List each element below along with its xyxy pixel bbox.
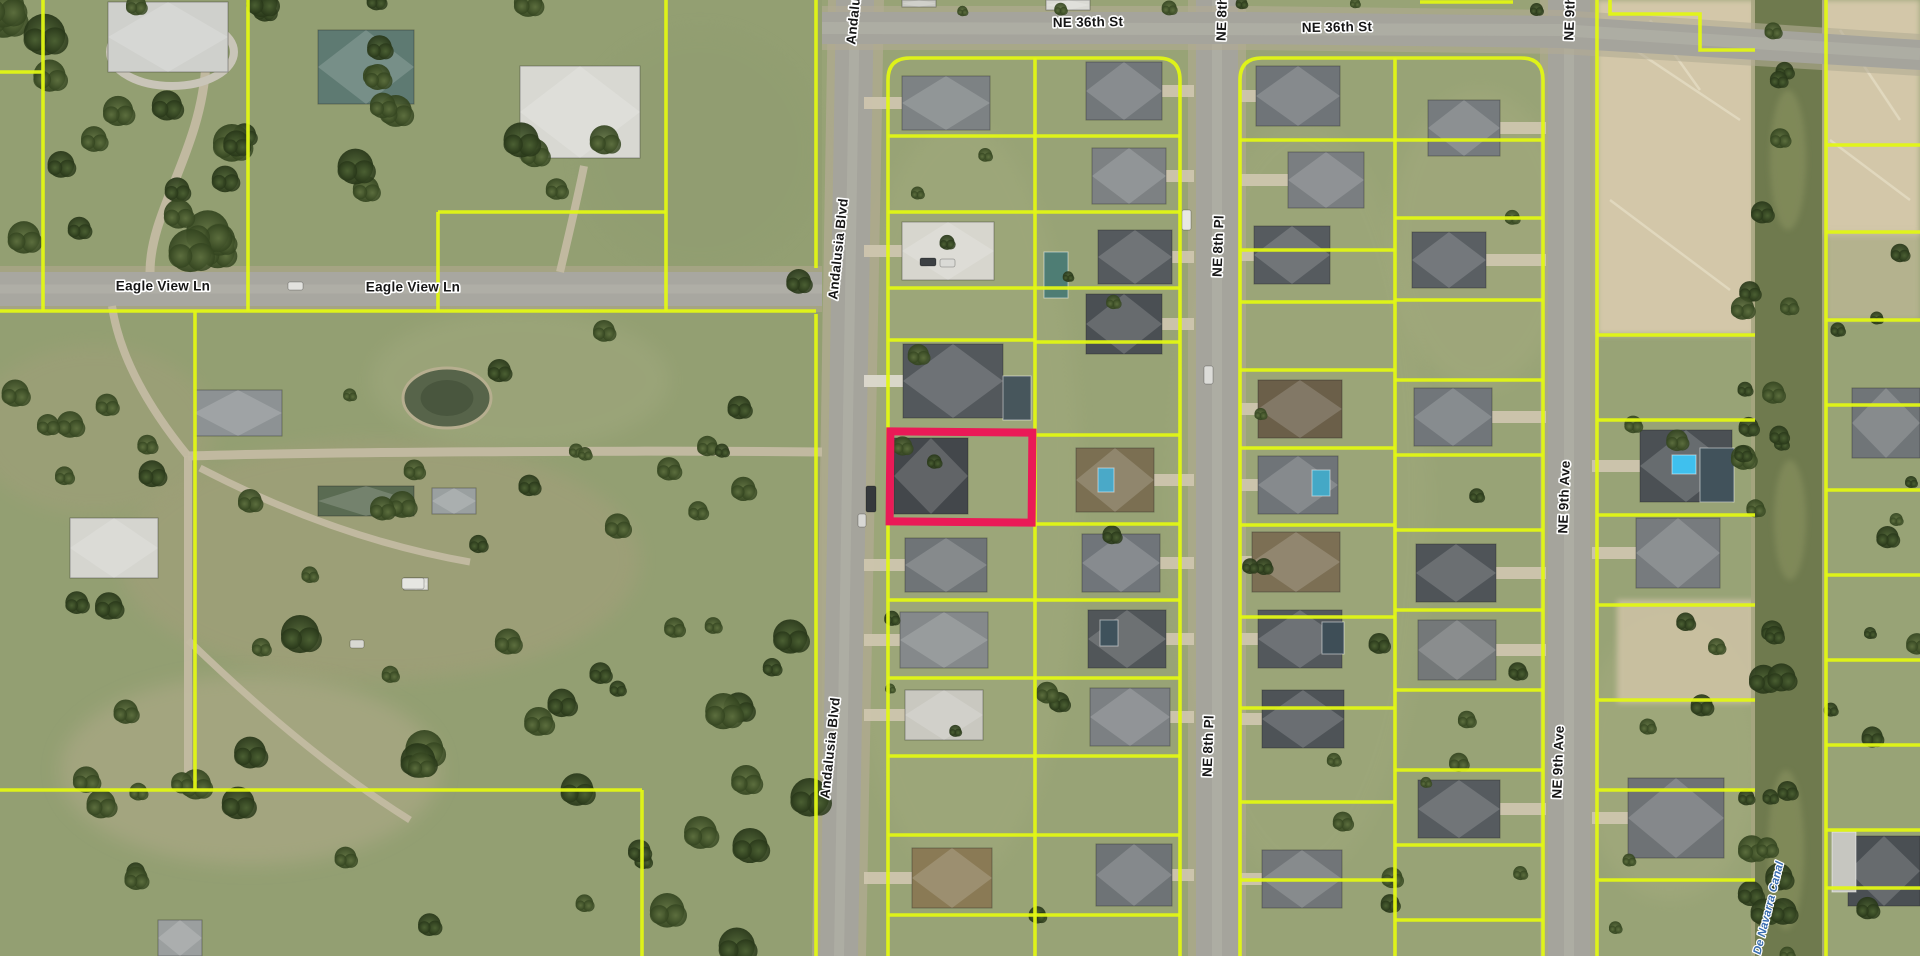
tree-canopy [338,161,358,181]
tree-canopy [238,497,251,510]
house [1428,100,1500,156]
canal-shallow-patch [1770,90,1806,230]
street-label: NE 9th Ave [1549,725,1567,799]
car [288,282,303,290]
tree-canopy [1327,758,1335,766]
tree-canopy [281,628,302,649]
driveway [1240,633,1258,645]
tree-canopy [786,278,800,292]
tree-canopy [908,351,920,363]
tree-canopy [1780,304,1790,314]
tree-canopy [688,508,699,519]
house [1412,232,1486,288]
house [1092,148,1166,204]
tree-canopy [96,402,108,414]
tree-canopy [81,135,95,149]
tree-canopy [524,717,540,733]
house [70,518,158,578]
tree-canopy [1738,890,1752,904]
tree-canopy [1739,424,1750,435]
driveway [1592,460,1640,472]
canal-shallow-patch [1774,460,1806,580]
driveway [864,709,905,721]
driveway [1162,318,1194,330]
driveway [1240,174,1288,186]
tree-canopy [715,449,723,457]
pool [1098,468,1114,492]
tree-canopy [1770,135,1781,146]
house [1258,380,1342,438]
tree-canopy [1762,795,1771,804]
tree-canopy [1508,669,1518,679]
tree-canopy [86,800,102,816]
house [900,612,988,668]
tree-canopy [1236,2,1242,8]
tree-canopy [1767,673,1782,688]
tree-canopy [382,672,391,681]
street-label: NE 9th Ave [1555,460,1573,534]
street-label: NE 8th Pl [1199,715,1216,777]
house [1096,844,1172,906]
tree-canopy [1876,534,1888,546]
house [912,848,992,908]
canal-bank-west [1751,0,1755,956]
tree-canopy [252,645,262,655]
tree-canopy [1905,480,1912,487]
car [1204,366,1213,384]
house [1848,836,1920,906]
tree-canopy [940,240,948,248]
driveway [864,634,900,646]
tree-canopy [222,798,240,816]
house [902,76,990,130]
tree-canopy [684,827,702,845]
house [1262,690,1344,748]
tree-canopy [164,210,180,226]
street-label: NE 36th St [1053,14,1124,30]
driveway [1500,122,1546,134]
tree-canopy [370,505,383,518]
tree-canopy [1764,28,1773,37]
tree-canopy [1469,493,1477,501]
tree-canopy [1254,412,1261,419]
tree-canopy [978,153,986,161]
tree-canopy [957,9,963,15]
tree-canopy [126,2,137,13]
driveway [1492,411,1546,423]
driveway [1172,251,1194,263]
tree-canopy [169,244,193,268]
driveway [1170,711,1194,723]
driveway [864,559,905,571]
house [1082,534,1160,592]
tree-canopy [1890,518,1897,525]
tree-canopy [518,482,530,494]
driveway [1162,85,1194,97]
tree-canopy [223,140,237,154]
tree-canopy [1624,422,1634,432]
house [194,390,282,436]
tree-canopy [927,459,935,467]
tree-canopy [732,840,751,859]
tree-canopy [1102,532,1112,542]
tree-canopy [1734,451,1743,460]
car [940,259,955,267]
street-label: NE 8th Pl [1209,215,1226,277]
tree-canopy [705,706,725,726]
tree-canopy [367,44,381,58]
tree-canopy [1769,432,1780,443]
tree-canopy [1738,845,1753,860]
tree-canopy [1162,6,1170,14]
pool [1100,620,1118,646]
tree-canopy [1666,437,1678,449]
tree-canopy [1054,7,1061,14]
tree-canopy [1381,901,1391,911]
tree-canopy [335,854,347,866]
car [1182,210,1191,230]
tree-canopy [495,638,509,652]
pool [1832,832,1856,892]
tree-canopy [1513,871,1521,879]
tree-canopy [1856,905,1868,917]
tree-canopy [773,631,792,650]
driveway [1154,474,1194,486]
tree-canopy [949,729,956,736]
tree-canopy [569,449,577,457]
tree-canopy [37,422,49,434]
tree-canopy [731,775,747,791]
tree-canopy [234,748,252,766]
car [920,258,936,266]
tree-canopy [1751,209,1763,221]
tree-canopy [547,699,563,715]
tree-canopy [8,233,26,251]
house [1416,544,1496,602]
tree-canopy [1420,781,1426,787]
tree-canopy [1770,77,1780,87]
tree-canopy [114,708,127,721]
house [108,2,228,72]
tree-canopy [697,443,708,454]
house [1086,62,1162,120]
tree-canopy [1731,305,1744,318]
pool [1700,448,1734,502]
driveway [1240,713,1262,725]
tree-canopy [664,625,675,636]
street-label: NE 9th Ave [1561,0,1579,41]
house [1636,518,1720,588]
house [1086,294,1162,354]
street-label: NE 36th St [1302,19,1373,35]
tree-canopy [610,686,619,695]
tree-canopy [343,393,350,400]
driveway [864,245,902,257]
tree-canopy [1609,926,1616,933]
tree-canopy [1369,640,1380,651]
tree-canopy [48,160,63,175]
tree-canopy [418,921,430,933]
tree-canopy [1765,632,1775,642]
tree-canopy [893,443,904,454]
driveway [1240,479,1258,491]
tree-canopy [55,473,65,483]
tree-canopy [73,776,88,791]
house [1414,388,1492,446]
house [1256,66,1340,126]
house [1288,152,1364,208]
map-viewport[interactable]: Andalusia BlvdNE 36th StNE 8th PlNE 36th… [0,0,1920,956]
tree-canopy [1350,2,1356,8]
tree-canopy [578,452,586,460]
tree-canopy [365,73,379,87]
pool [1672,455,1696,474]
tree-canopy [1640,724,1649,733]
pool [1322,622,1344,654]
house [905,690,983,740]
tree-canopy [1762,389,1774,401]
house [158,920,202,956]
tree-canopy [1676,619,1686,629]
tree-canopy [1063,275,1069,281]
tree-canopy [561,785,579,803]
tree-canopy [590,135,606,151]
driveway [1172,869,1194,881]
tree-canopy [1458,717,1468,727]
street-label: Eagle View Ln [116,279,210,294]
house [1418,780,1500,838]
house [1418,620,1496,680]
car [866,486,876,512]
tree-canopy [152,101,169,118]
tree-canopy [628,847,640,859]
driveway [864,375,903,387]
tree-canopy [1691,702,1703,714]
tree-canopy [657,465,670,478]
tree-canopy [1749,675,1765,691]
tree-canopy [763,665,773,675]
tree-canopy [404,467,415,478]
pond-deep [421,380,474,416]
tree-canopy [95,602,110,617]
tree-canopy [1864,631,1871,638]
tree-canopy [124,875,137,888]
tree-canopy [911,191,918,198]
tree-canopy [605,522,619,536]
tree-canopy [408,761,422,775]
house [1852,388,1920,458]
tree-canopy [370,102,384,116]
tree-canopy [504,135,523,154]
tree-canopy [1830,327,1838,335]
tree-canopy [650,905,669,924]
house [1090,688,1170,746]
driveway [1496,567,1546,579]
house [432,488,476,514]
house [318,30,414,104]
tree-canopy [68,225,81,238]
tree-canopy [1333,819,1344,830]
house [902,0,936,7]
house [905,538,987,592]
tree-canopy [65,599,78,612]
tree-canopy [1530,8,1537,15]
dirt-area [1826,232,1920,320]
tree-canopy [1242,564,1251,573]
tree-canopy [488,367,501,380]
tree-canopy [139,470,154,485]
tree-canopy [731,485,744,498]
tree-canopy [103,106,120,123]
tree-canopy [1738,387,1746,395]
tree-canopy [212,175,227,190]
tree-canopy [469,541,479,551]
pool [1312,470,1330,496]
tree-canopy [705,623,714,632]
house [1254,226,1330,284]
tree-canopy [137,442,148,453]
tree-canopy [1738,795,1747,804]
street-label: Eagle View Ln [366,280,460,295]
tree-canopy [576,901,586,911]
tree-canopy [165,186,179,200]
tree-canopy [1036,689,1048,701]
aerial-parcel-map[interactable]: Andalusia BlvdNE 36th StNE 8th PlNE 36th… [0,0,1920,956]
driveway [1160,557,1194,569]
tree-canopy [589,670,601,682]
driveway [1240,90,1256,102]
house [1098,230,1172,284]
house [902,222,994,280]
tree-canopy [1623,858,1630,865]
house [1076,448,1154,512]
tree-canopy [593,328,605,340]
car [402,578,424,589]
tree-canopy [1756,845,1768,857]
tree-canopy [790,791,811,812]
car [858,514,866,527]
tree-canopy [2,389,17,404]
tree-canopy [353,185,367,199]
tree-canopy [1106,300,1114,308]
tree-canopy [546,186,558,198]
street-label: NE 8th Pl [1213,0,1230,41]
tree-canopy [1891,250,1901,260]
house [1046,0,1090,10]
car [350,640,364,648]
driveway [1496,644,1546,656]
field-patch [120,440,640,680]
driveway [1500,803,1546,815]
pool [1003,376,1031,420]
tree-canopy [728,404,741,417]
tree-canopy [1708,644,1717,653]
driveway [864,97,902,109]
tree-canopy [1777,788,1788,799]
tree-canopy [1906,641,1918,653]
driveway [1486,254,1546,266]
tree-canopy [301,572,310,581]
